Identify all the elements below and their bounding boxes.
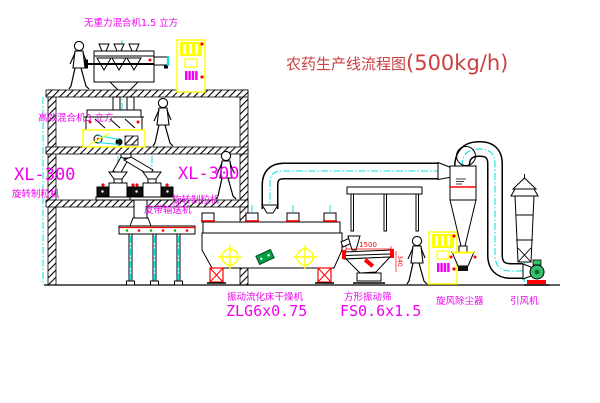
- control-cabinet-bottom: [429, 232, 457, 284]
- label-granulator-left-name: 旋转制粒机: [12, 188, 60, 200]
- sieve-dimension-height: 340: [396, 251, 403, 272]
- person-figure-4: [407, 236, 427, 284]
- square-vibrating-sieve: 1500 340: [342, 236, 403, 283]
- duct-support-platform: [347, 187, 422, 231]
- title-capacity: (500kg/h): [406, 51, 508, 75]
- induced-draft-fan: [523, 260, 549, 285]
- label-dryer-model: ZLG6x0.75: [226, 302, 307, 320]
- label-fan: 引风机: [510, 295, 539, 307]
- label-cyclone: 旋风除尘器: [436, 295, 484, 307]
- label-granulator-left-model: XL-300: [14, 165, 75, 185]
- control-cabinet-top: [177, 40, 205, 92]
- exhaust-stack: [511, 174, 538, 262]
- person-figure-2: [153, 98, 173, 146]
- dryer-spring-mount-left: [207, 268, 226, 283]
- cad-drawing: 1500 340: [0, 0, 600, 403]
- label-belt-conveyor: 皮带输送机: [144, 204, 192, 216]
- cyclone-separator: [450, 147, 477, 272]
- label-granulator-right-model: XL-300: [178, 164, 239, 184]
- title-chinese: 农药生产线流程图: [286, 55, 406, 73]
- rotary-granulator-right: [130, 172, 174, 200]
- diagram-title: 农药生产线流程图(500kg/h): [286, 51, 508, 75]
- dryer-spring-mount-right: [315, 268, 334, 283]
- dryer-ports: [201, 213, 337, 222]
- label-high-efficiency-mixer: 高效混合机3 立方: [38, 112, 114, 124]
- gravity-free-mixer: [84, 44, 168, 111]
- dimension-1500: 1500: [359, 241, 377, 249]
- label-gravity-free-mixer: 无重力混合机1.5 立方: [84, 17, 178, 29]
- dimension-340: 340: [396, 255, 403, 267]
- label-sieve-model: FS0.6x1.5: [340, 302, 421, 320]
- fluid-bed-dryer: [201, 213, 354, 283]
- flow-diagram: 1500 340: [0, 0, 600, 403]
